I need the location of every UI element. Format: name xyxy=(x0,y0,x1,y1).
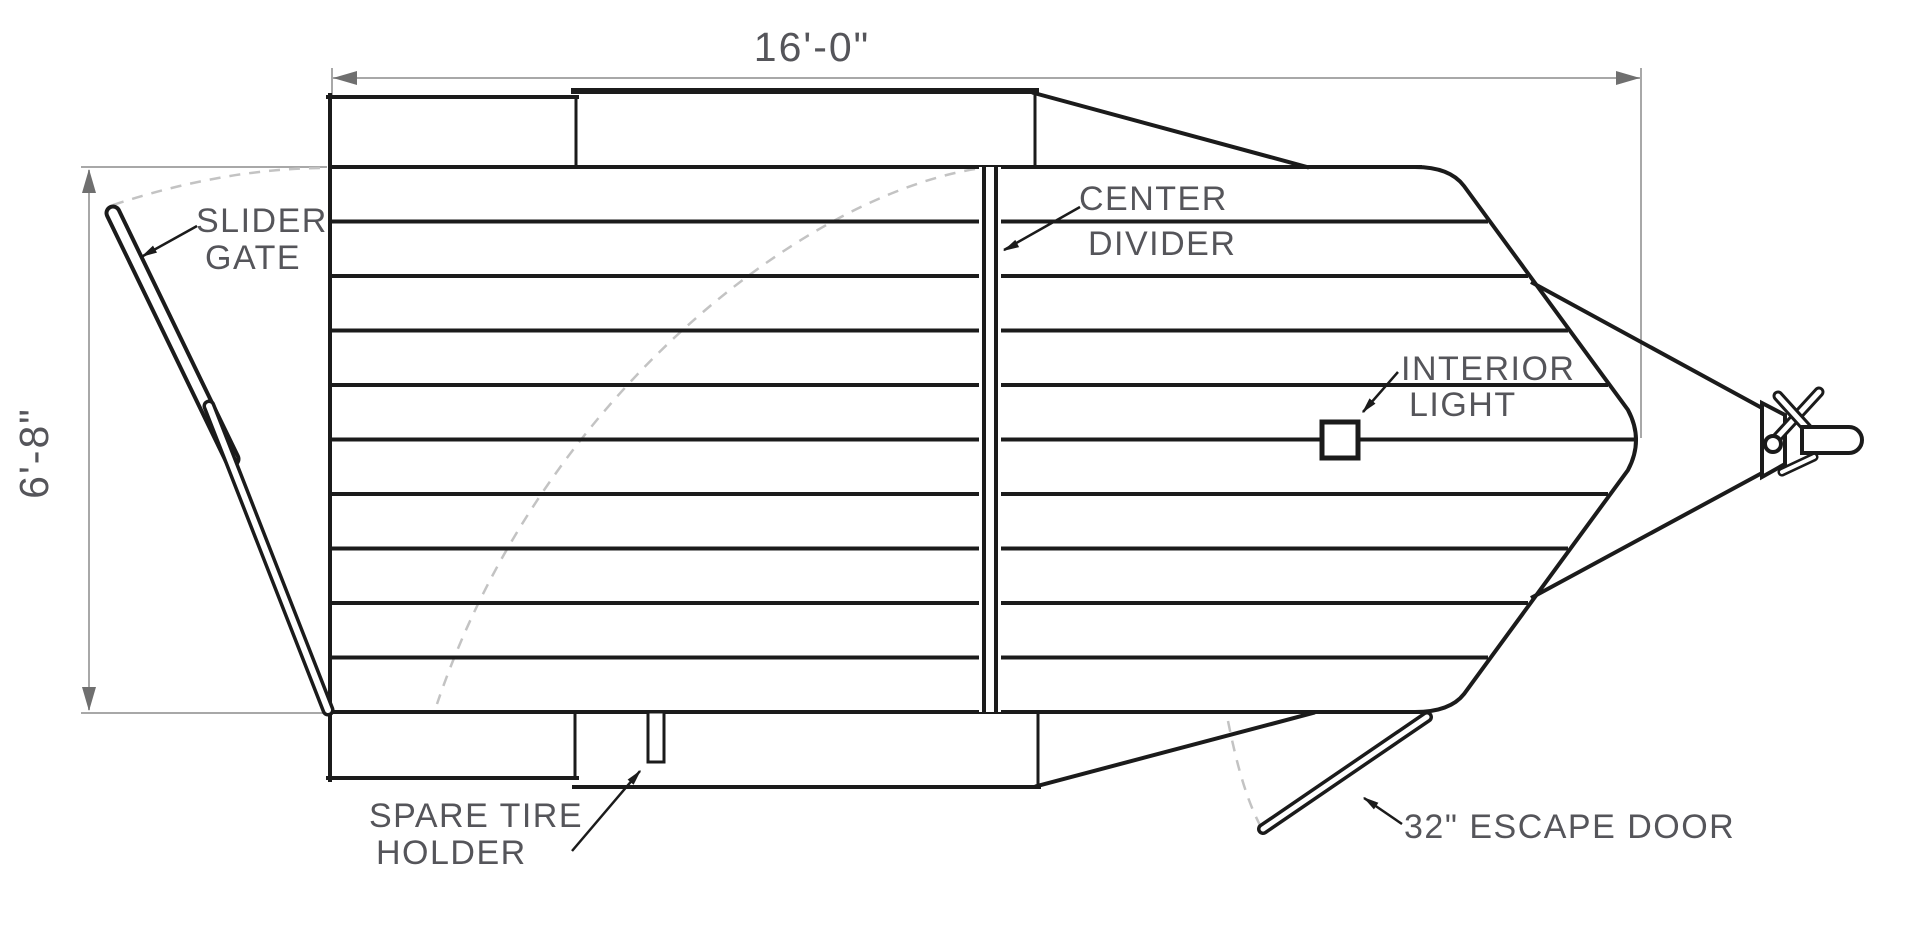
escape-door-label: 32" ESCAPE DOOR xyxy=(1404,810,1735,844)
length-dimension-text: 16'-0" xyxy=(700,24,924,71)
callout-arrowheads xyxy=(141,240,1378,810)
interior-light-label-line2: LIGHT xyxy=(1409,388,1517,422)
jack-pivot xyxy=(1765,436,1781,452)
spare-tire-holder-label-line1: SPARE TIRE xyxy=(369,799,583,833)
center-divider xyxy=(979,167,1001,712)
coupler-latch xyxy=(1802,427,1862,453)
trailer-floor-plan-drawing xyxy=(0,0,1920,933)
arrow-right-icon xyxy=(1616,71,1640,85)
trailer-floor-plan: 16'-0" 6'-8" SLIDER GATE CENTER DIVIDER … xyxy=(0,0,1920,933)
center-divider-swing-arc xyxy=(437,169,975,704)
slider-gate-swing-arc xyxy=(113,168,327,205)
interior-light-label-line1: INTERIOR xyxy=(1401,352,1575,386)
spare-tire-holder-bracket xyxy=(648,712,664,762)
escape-door xyxy=(1263,717,1427,829)
leader-arrow-icon xyxy=(141,246,157,257)
slider-gate xyxy=(113,213,328,710)
slider-gate-label-line1: SLIDER xyxy=(196,204,328,238)
arrow-left-icon xyxy=(333,71,357,85)
tongue-top-member xyxy=(1531,282,1762,408)
spare-tire-holder-label-line2: HOLDER xyxy=(376,836,527,870)
top-nose-taper xyxy=(1034,93,1307,167)
center-divider-label-line1: CENTER xyxy=(1079,182,1228,216)
escape-door-swing-arc xyxy=(1228,721,1261,827)
center-divider-label-line2: DIVIDER xyxy=(1088,227,1236,261)
width-dimension-text: 6'-8" xyxy=(11,383,55,523)
interior-light-symbol xyxy=(1322,422,1358,458)
arrow-down-icon xyxy=(82,687,96,711)
bottom-nose-taper xyxy=(1037,713,1313,786)
arrow-up-icon xyxy=(82,169,96,193)
tongue-bottom-member xyxy=(1531,473,1762,598)
slider-gate-label-line2: GATE xyxy=(205,241,301,275)
